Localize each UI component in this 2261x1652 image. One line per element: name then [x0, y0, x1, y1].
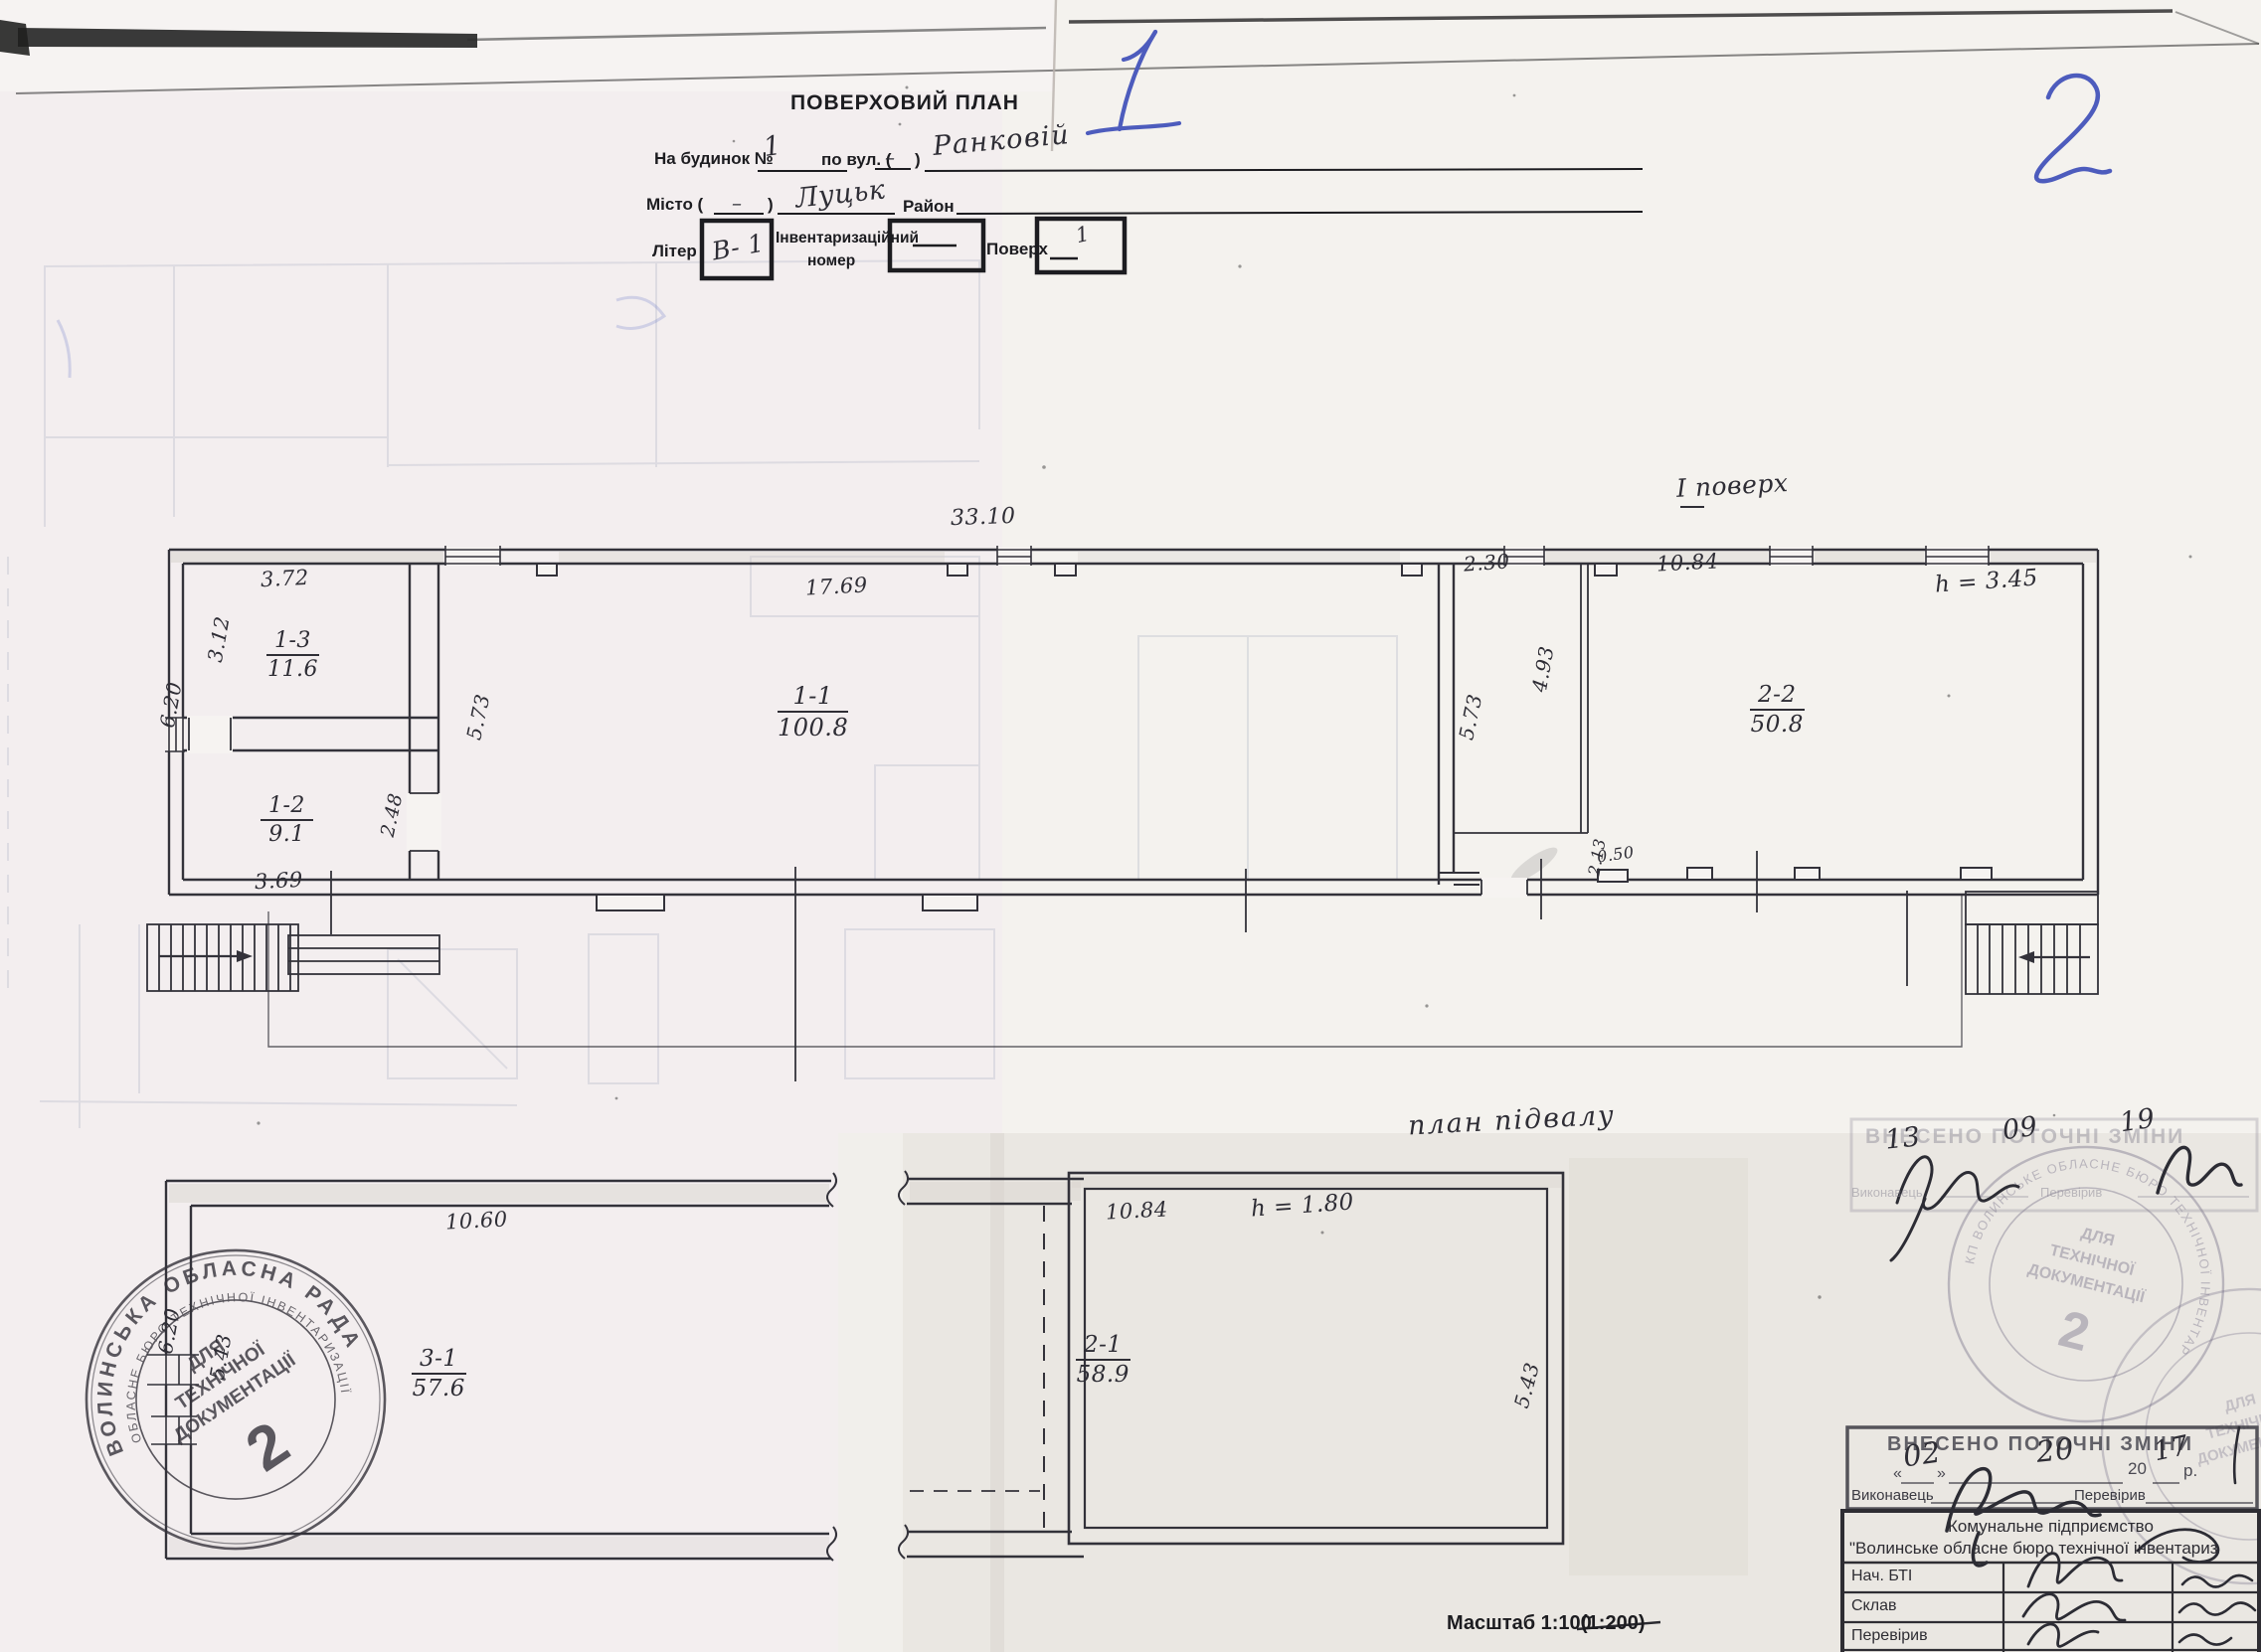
room-label-1-1: 1-1 100.8: [778, 682, 848, 742]
basement-wall-shading: [169, 1176, 1561, 1556]
artwork-layer: ВОЛИНСЬКА ОБЛАСНА РАДА ОБЛАСНЕ БЮРО ТЕХН…: [0, 0, 2261, 1652]
room-label-1-3: 1-3 11.6: [266, 628, 319, 682]
room-id: 1-3: [266, 628, 319, 656]
room-area: 11.6: [266, 656, 319, 682]
changes-bottom-executor-label: Виконавець: [1851, 1487, 1934, 1504]
room-label-3-1: 3-1 57.6: [412, 1346, 466, 1402]
stamp-number: 2: [235, 1408, 301, 1484]
liter-label: Літер: [652, 242, 697, 261]
building-label: На будинок №: [654, 149, 774, 169]
room-area: 9.1: [261, 821, 313, 847]
room-label-1-2: 1-2 9.1: [261, 793, 313, 847]
room-label-2-1: 2-1 58.9: [1076, 1332, 1130, 1388]
speckles: [257, 86, 2191, 1299]
room-area: 58.9: [1076, 1361, 1130, 1388]
staircase-right: [1966, 892, 2098, 994]
org-row-label-sklav: Склав: [1851, 1597, 1896, 1615]
city-label: Місто (: [646, 195, 703, 215]
stamp-right-number: 2: [2053, 1300, 2095, 1363]
street-paren-value: –: [885, 145, 896, 169]
district-label: Район: [903, 197, 955, 217]
basement-plan-drawing: [147, 1171, 1563, 1561]
room-area: 100.8: [778, 713, 848, 742]
org-row-label-pereviryv: Перевірив: [1851, 1627, 1928, 1645]
stamp-right2-center1: ДЛЯ: [2222, 1391, 2257, 1415]
dim-10-84-basement: 10.84: [1105, 1197, 1168, 1224]
round-stamp-right-upper: КП ВОЛИНСЬКЕ ОБЛАСНЕ БЮРО ТЕХНІЧНОЇ ІНВЕ…: [1907, 1105, 2261, 1462]
city-paren-close: ): [768, 195, 774, 215]
dim-3-72: 3.72: [260, 566, 309, 592]
room-id: 2-2: [1750, 682, 1805, 711]
org-header-line1: Комунальне підприємство: [1842, 1517, 2259, 1537]
floor-plan-title: І поверх: [1675, 468, 1789, 503]
org-header-line2: "Волинське обласне бюро технічної інвент…: [1849, 1539, 2218, 1559]
stamp-right-center1: ДЛЯ: [2079, 1226, 2116, 1250]
room-id: 3-1: [412, 1346, 466, 1375]
dim-10-84-floor: 10.84: [1655, 549, 1719, 576]
staircase-left: [147, 924, 298, 991]
scanned-floor-plan-document: ВОЛИНСЬКА ОБЛАСНА РАДА ОБЛАСНЕ БЮРО ТЕХН…: [0, 0, 2261, 1652]
changes-top-executor-label: Виконавець: [1851, 1185, 1923, 1200]
blue-bleed-marks: [58, 297, 664, 378]
street-paren-close: ): [915, 150, 921, 170]
page-title: ПОВЕРХОВИЙ ПЛАН: [756, 91, 1054, 115]
org-row-label-nach-bti: Нач. БТІ: [1851, 1568, 1912, 1585]
lower-level-outline: [268, 894, 1962, 1047]
dim-2-30: 2.30: [1463, 549, 1510, 576]
changes-bottom-year-prefix: 20: [2128, 1459, 2147, 1479]
changes-top-date-day: 13: [1883, 1121, 1921, 1156]
blue-pen-page-number-2: [2036, 76, 2110, 181]
scale-note-struck: (1:200): [1581, 1612, 1645, 1635]
floor-label: Поверх: [986, 240, 1048, 259]
dim-17-69: 17.69: [804, 573, 868, 599]
changes-top-checker-label: Перевірив: [2040, 1185, 2102, 1200]
inventory-label-line2: номер: [807, 252, 855, 270]
changes-top-date-year: 19: [2118, 1103, 2157, 1139]
street-label: по вул. (: [821, 150, 892, 170]
room-area: 50.8: [1750, 711, 1805, 738]
scale-note: Масштаб 1:100: [1447, 1612, 1592, 1635]
room-label-2-2: 2-2 50.8: [1750, 682, 1805, 738]
blue-pen-page-number-1: [1088, 32, 1179, 133]
changes-bottom-year-suffix: р.: [2183, 1461, 2197, 1481]
room-id: 1-2: [261, 793, 313, 821]
changes-bottom-checker-label: Перевірив: [2074, 1487, 2146, 1504]
dim-10-60: 10.60: [444, 1207, 508, 1234]
dim-3-69: 3.69: [254, 868, 303, 895]
signatures: [1891, 1147, 2255, 1646]
room-id: 1-1: [778, 682, 848, 713]
room-id: 2-1: [1076, 1332, 1130, 1361]
porch-steps: [288, 935, 439, 974]
dim-overall-33-10: 33.10: [951, 504, 1016, 531]
changes-bottom-quote-open: «: [1893, 1465, 1902, 1483]
city-paren-value: –: [732, 191, 743, 215]
changes-top-date-month: 09: [2000, 1111, 2039, 1147]
bleed-through-ghosts: [8, 260, 1397, 1128]
changes-bottom-date-day: 02: [1901, 1435, 1943, 1474]
room-area: 57.6: [412, 1375, 466, 1402]
changes-bottom-date-month: 20: [2034, 1431, 2075, 1469]
inventory-label-line1: Інвентаризаційний: [776, 230, 919, 248]
